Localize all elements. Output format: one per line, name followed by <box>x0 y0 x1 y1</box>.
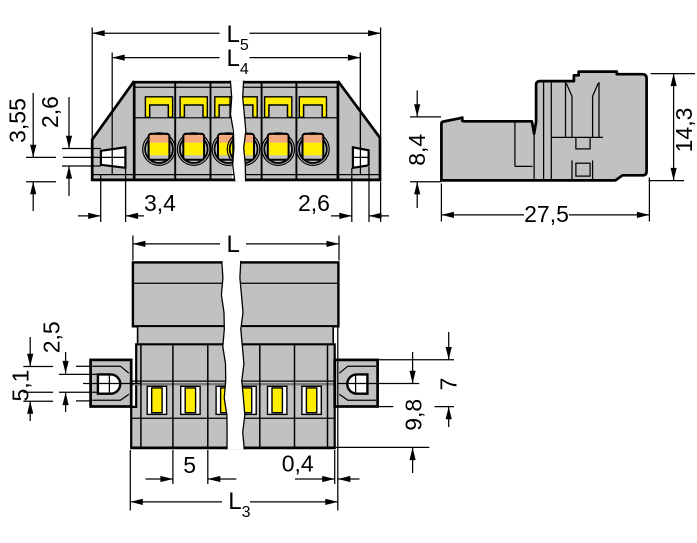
svg-text:2,6: 2,6 <box>37 96 63 128</box>
svg-text:2,6: 2,6 <box>298 190 330 216</box>
svg-text:0,4: 0,4 <box>282 451 314 477</box>
svg-text:9,8: 9,8 <box>401 399 427 431</box>
svg-text:5: 5 <box>183 452 196 478</box>
svg-text:L3: L3 <box>228 488 250 521</box>
svg-text:8,4: 8,4 <box>404 134 430 166</box>
svg-text:3,4: 3,4 <box>144 190 176 216</box>
svg-text:2,5: 2,5 <box>39 321 65 353</box>
svg-text:5,1: 5,1 <box>8 370 34 402</box>
svg-text:L: L <box>227 231 240 258</box>
svg-text:3,55: 3,55 <box>5 98 31 143</box>
svg-text:27,5: 27,5 <box>524 201 569 227</box>
svg-text:7: 7 <box>436 378 462 391</box>
svg-text:14,3: 14,3 <box>671 108 697 153</box>
